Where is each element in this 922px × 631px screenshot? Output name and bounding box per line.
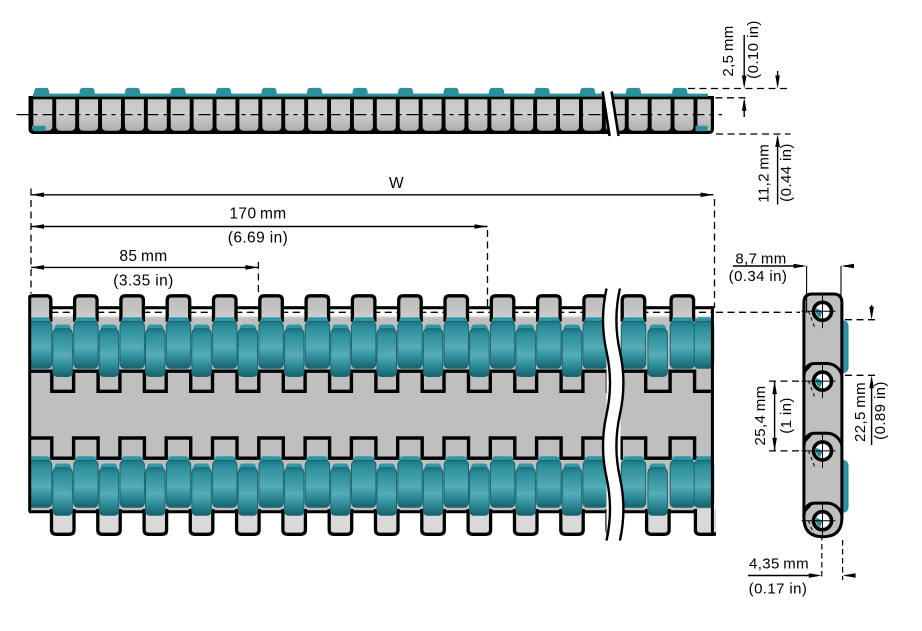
svg-text:(0.10 in): (0.10 in) bbox=[745, 20, 762, 79]
svg-text:(3.35 in): (3.35 in) bbox=[113, 273, 173, 290]
svg-text:2,5 mm: 2,5 mm bbox=[720, 25, 737, 76]
svg-text:11,2 mm: 11,2 mm bbox=[755, 144, 772, 203]
svg-text:W: W bbox=[389, 175, 404, 192]
svg-text:(0.17 in): (0.17 in) bbox=[749, 581, 808, 598]
svg-text:(0.89 in): (0.89 in) bbox=[872, 381, 889, 440]
svg-text:(0.44 in): (0.44 in) bbox=[778, 143, 795, 202]
svg-text:(6.69 in): (6.69 in) bbox=[228, 230, 288, 247]
svg-text:22,5 mm: 22,5 mm bbox=[852, 382, 869, 442]
svg-text:85 mm: 85 mm bbox=[119, 248, 167, 265]
svg-text:170 mm: 170 mm bbox=[229, 206, 286, 223]
svg-text:(1 in): (1 in) bbox=[778, 397, 795, 434]
svg-text:25,4 mm: 25,4 mm bbox=[752, 386, 769, 446]
svg-text:8,7 mm: 8,7 mm bbox=[735, 251, 786, 268]
svg-text:(0.34 in): (0.34 in) bbox=[729, 268, 788, 285]
svg-text:4,35 mm: 4,35 mm bbox=[749, 556, 809, 573]
